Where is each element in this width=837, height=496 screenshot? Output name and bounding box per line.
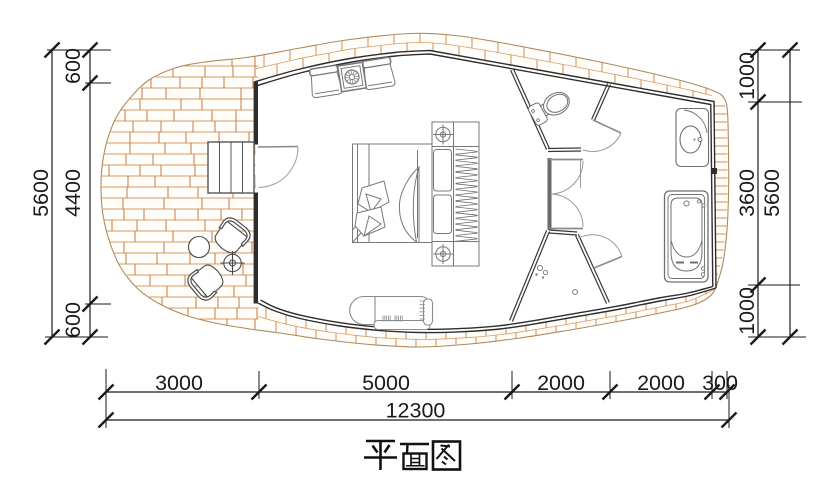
svg-text:600: 600 <box>61 302 85 338</box>
svg-text:3000: 3000 <box>155 371 203 395</box>
svg-text:4400: 4400 <box>61 169 85 217</box>
svg-text:1000: 1000 <box>735 287 759 335</box>
svg-text:5000: 5000 <box>362 371 410 395</box>
svg-text:3600: 3600 <box>735 169 759 217</box>
svg-text:5600: 5600 <box>760 169 784 217</box>
svg-text:1000: 1000 <box>735 52 759 100</box>
svg-text:300: 300 <box>702 371 738 395</box>
svg-text:2000: 2000 <box>637 371 685 395</box>
svg-text:5600: 5600 <box>29 169 53 217</box>
svg-text:12300: 12300 <box>386 399 446 423</box>
svg-text:600: 600 <box>61 48 85 84</box>
svg-text:2000: 2000 <box>537 371 585 395</box>
